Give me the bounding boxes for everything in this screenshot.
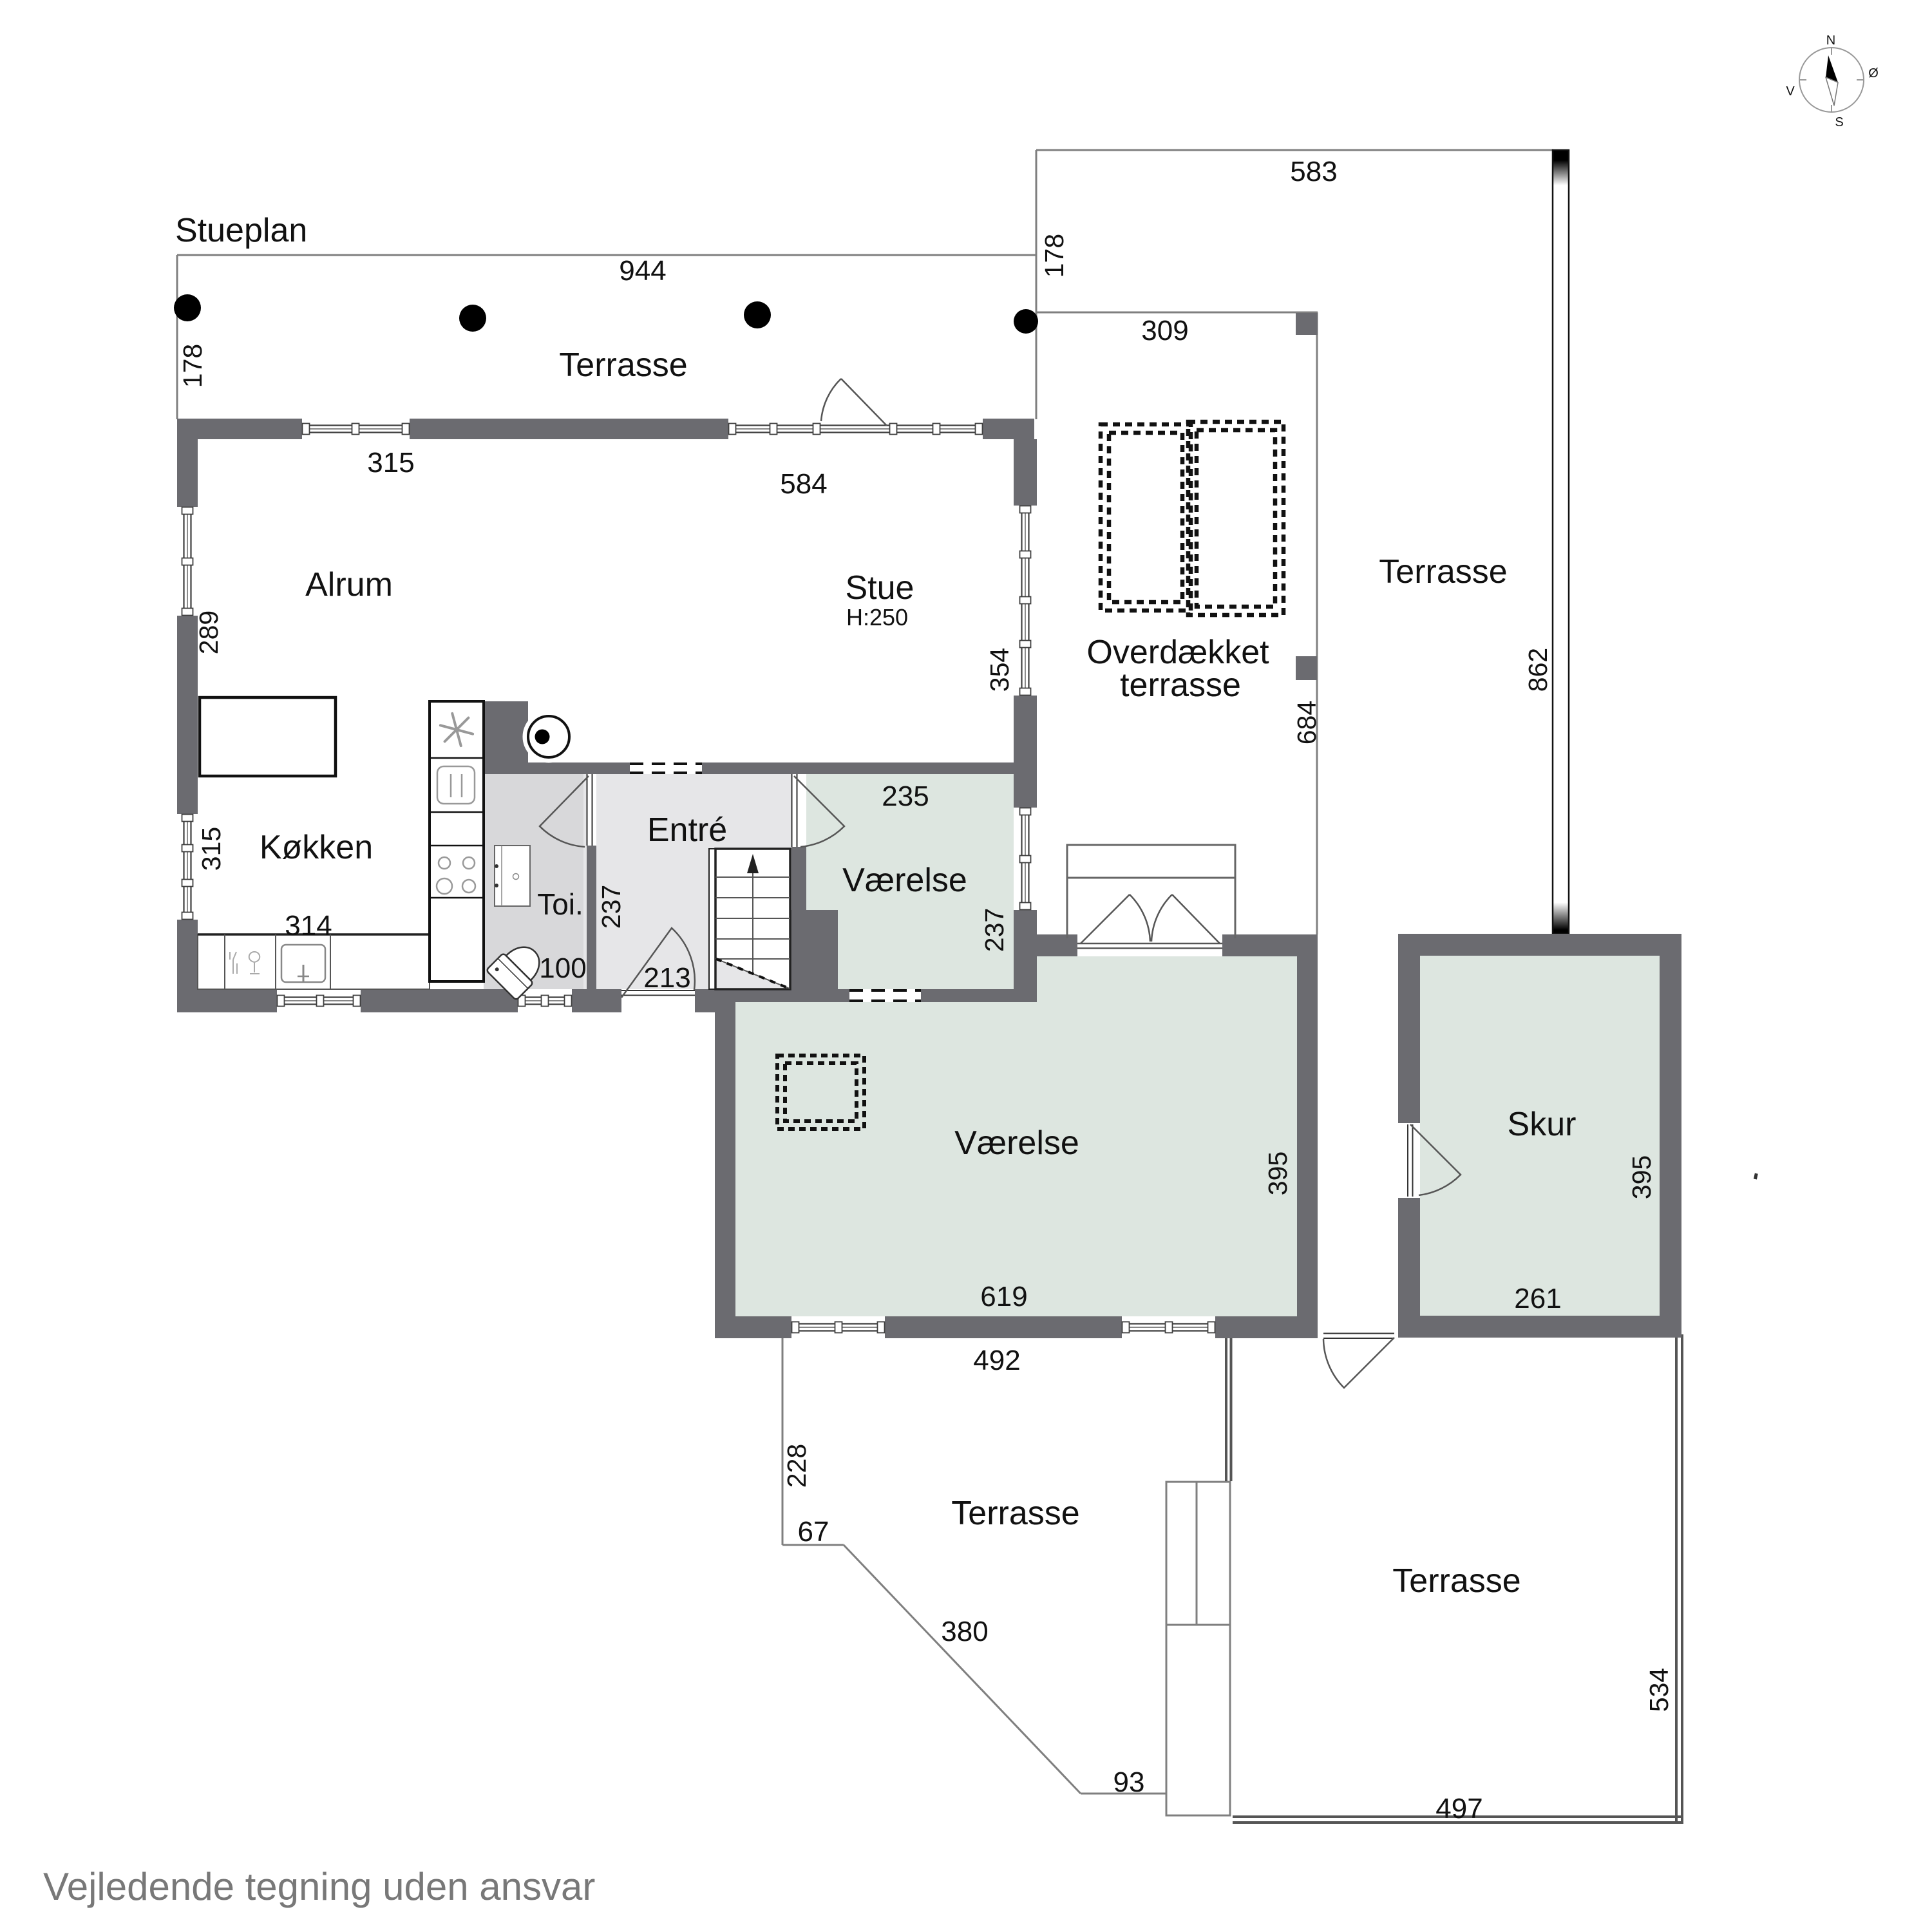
svg-text:Alrum: Alrum [305,566,393,603]
svg-text:497: 497 [1435,1793,1482,1824]
svg-text:309: 309 [1141,315,1188,346]
svg-text:213: 213 [643,962,690,994]
svg-text:93: 93 [1113,1766,1145,1798]
svg-text:314: 314 [285,910,332,942]
svg-text:67: 67 [798,1516,829,1548]
svg-text:Terrasse: Terrasse [951,1495,1079,1532]
svg-text:terrasse: terrasse [1120,667,1241,704]
svg-text:Stue: Stue [846,569,914,607]
svg-text:S: S [1835,115,1843,129]
svg-text:178: 178 [1039,234,1069,278]
svg-text:Terrasse: Terrasse [1392,1562,1520,1600]
svg-text:492: 492 [973,1345,1020,1376]
svg-text:Stueplan: Stueplan [175,212,307,249]
svg-text:380: 380 [941,1616,988,1647]
svg-text:289: 289 [194,611,223,654]
svg-text:V: V [1786,84,1795,99]
svg-text:583: 583 [1290,156,1337,187]
svg-text:534: 534 [1644,1668,1674,1712]
svg-text:315: 315 [367,447,414,478]
svg-text:395: 395 [1627,1155,1656,1199]
svg-text:Overdækket: Overdækket [1086,634,1269,671]
svg-text:Terrasse: Terrasse [559,346,687,384]
svg-text:315: 315 [196,827,226,871]
svg-text:862: 862 [1523,648,1553,692]
svg-text:N: N [1826,33,1835,48]
svg-text:Ø: Ø [1868,66,1879,80]
svg-text:H:250: H:250 [846,604,908,630]
svg-text:Toi.: Toi. [537,887,583,921]
svg-text:Værelse: Værelse [954,1124,1079,1162]
svg-text:619: 619 [980,1281,1027,1312]
svg-text:235: 235 [882,781,929,812]
svg-text:395: 395 [1263,1151,1293,1195]
svg-text:228: 228 [782,1444,811,1488]
svg-text:Skur: Skur [1508,1106,1577,1143]
svg-text:237: 237 [980,908,1009,952]
svg-text:Værelse: Værelse [842,862,967,899]
svg-text:Køkken: Køkken [260,829,373,866]
svg-text:584: 584 [780,468,827,500]
svg-text:944: 944 [619,255,666,287]
svg-text:178: 178 [178,344,207,388]
svg-text:684: 684 [1292,701,1321,744]
svg-text:261: 261 [1514,1283,1561,1314]
svg-text:Vejledende tegning uden ansvar: Vejledende tegning uden ansvar [43,1865,595,1908]
svg-text:354: 354 [985,648,1014,692]
svg-text:Terrasse: Terrasse [1379,553,1507,591]
svg-text:100: 100 [539,952,586,984]
svg-text:Entré: Entré [647,811,727,849]
svg-text:237: 237 [596,885,626,929]
